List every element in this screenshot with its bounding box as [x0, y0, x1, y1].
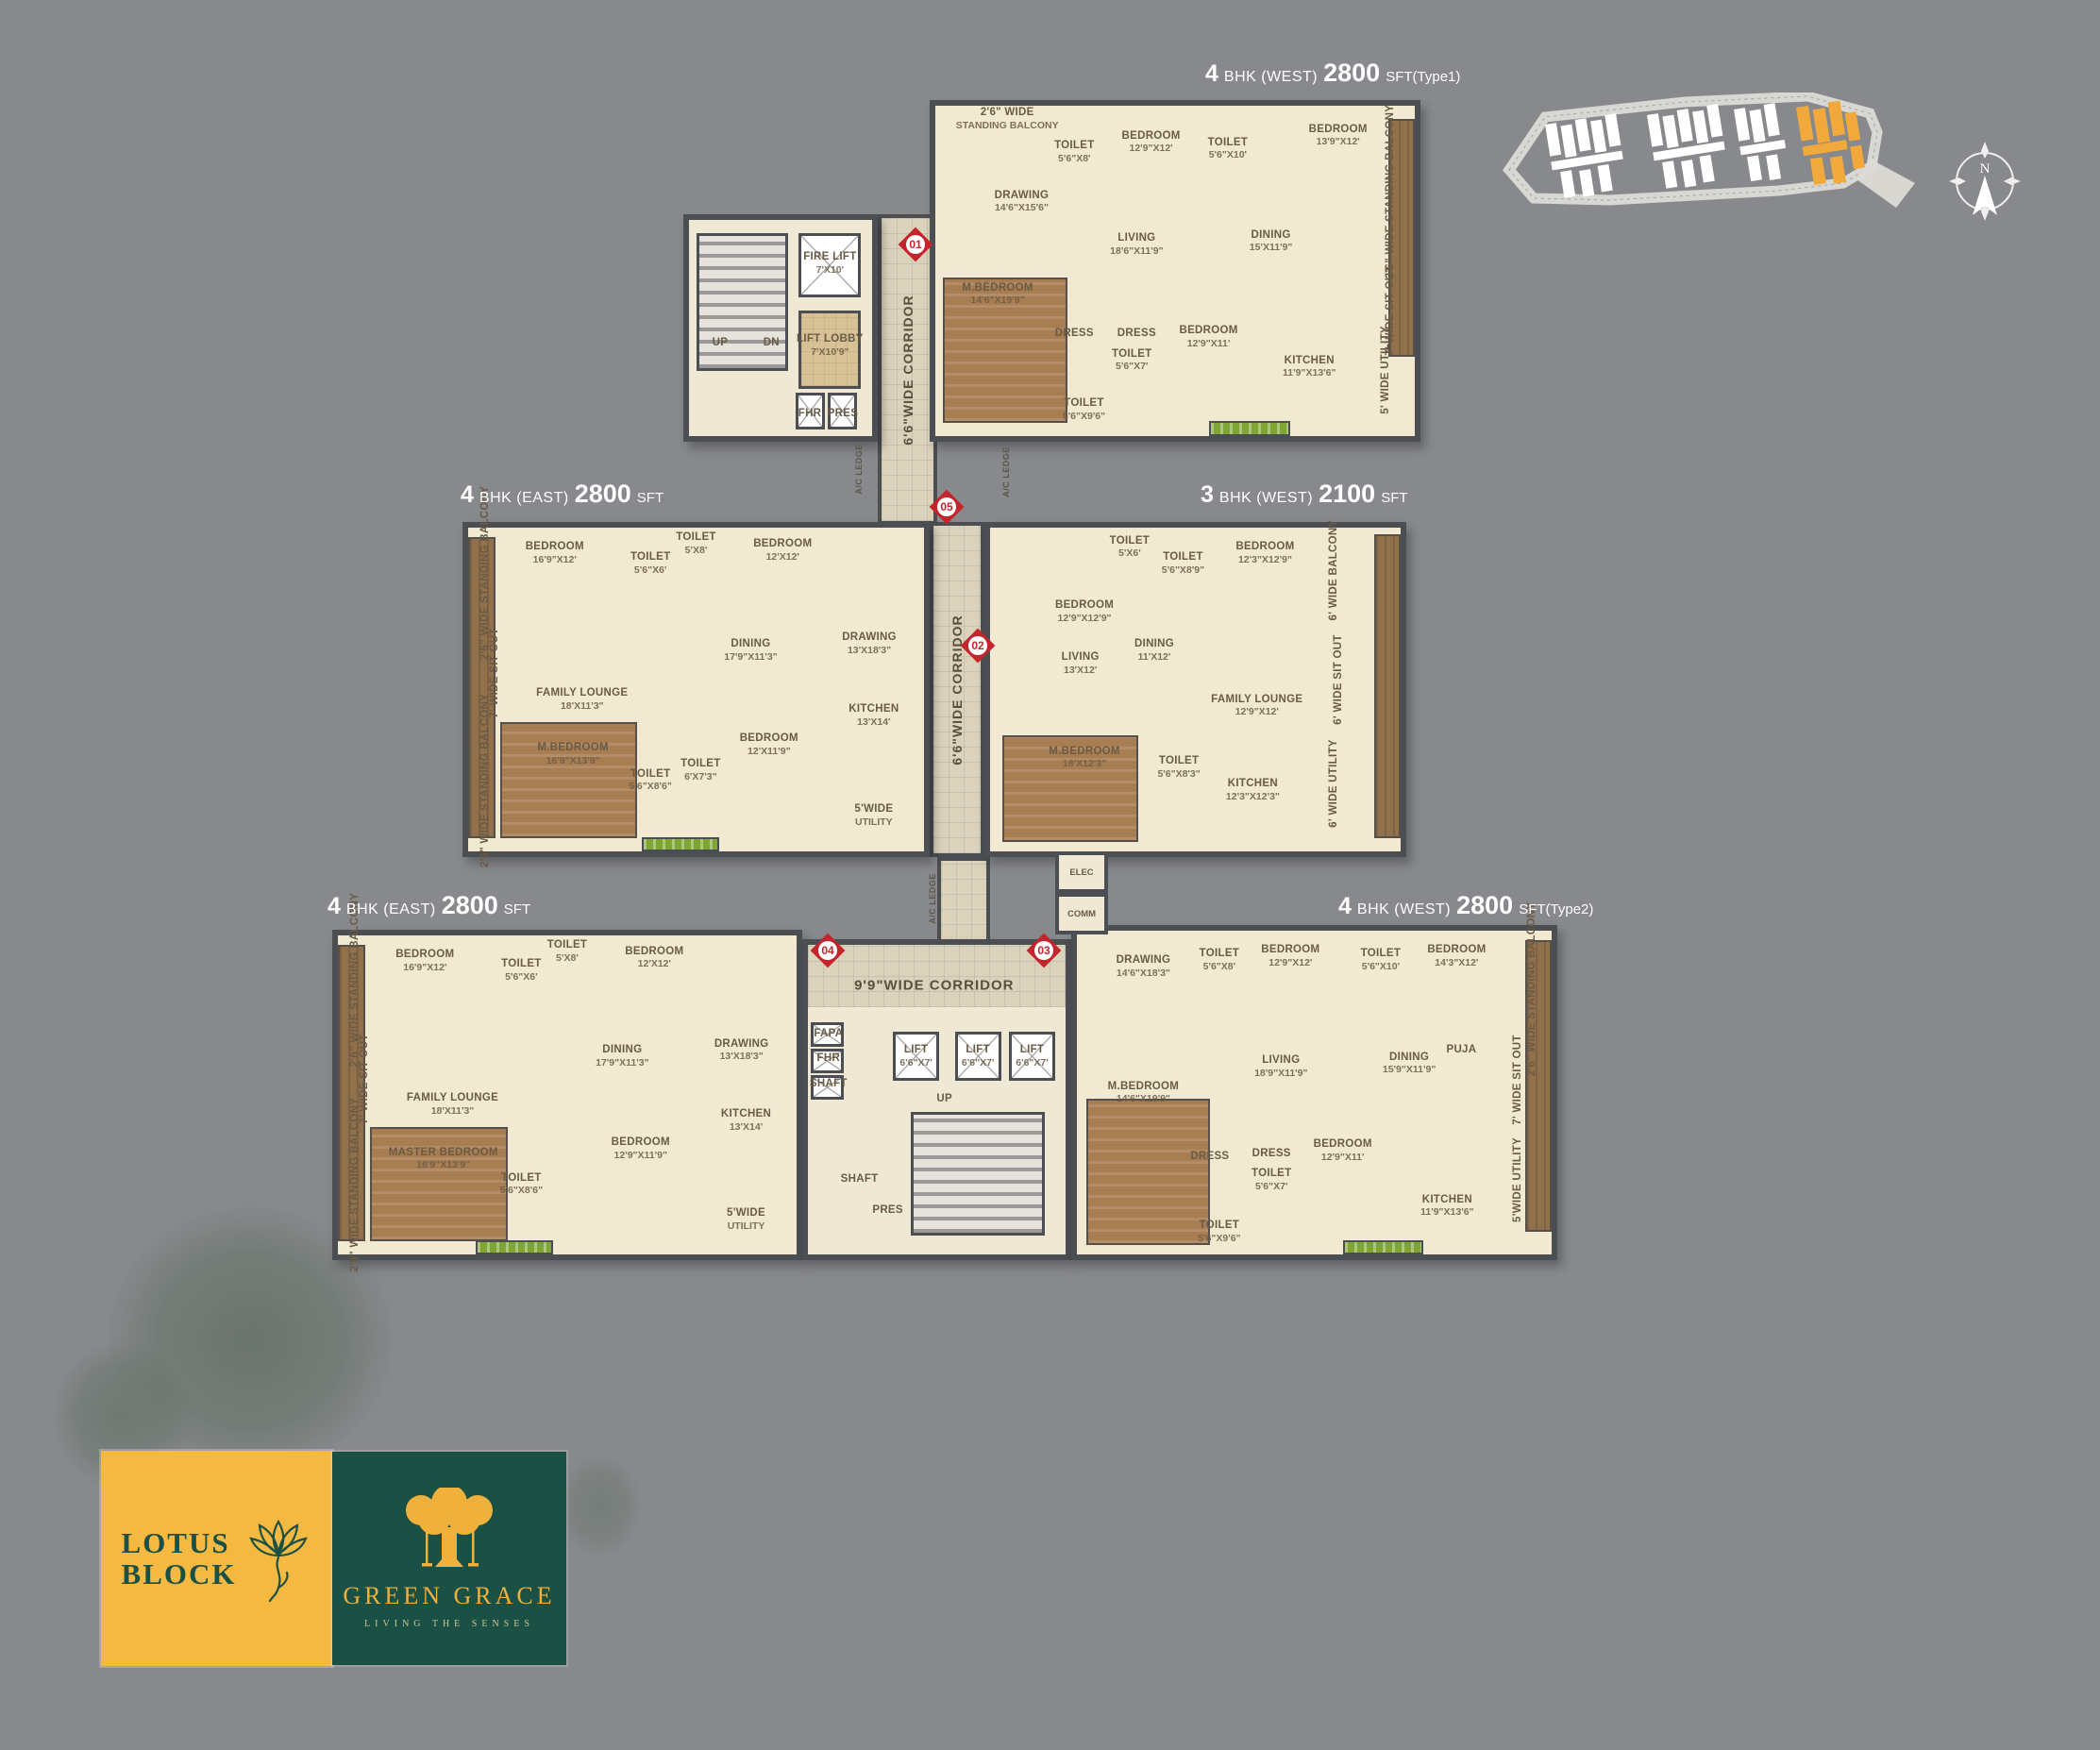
title-type: BHK (WEST): [1219, 490, 1313, 507]
title-type: BHK (EAST): [479, 490, 569, 507]
room-label-toilet: TOILET5'X6': [1110, 534, 1150, 559]
unit-02-3bhk-west: TOILET5'X6'TOILET5'6"X8'9"BEDROOM12'3"X1…: [984, 522, 1406, 857]
room-label-toilet: TOILET5'X8': [676, 531, 715, 556]
green-grace-tagline: LIVING THE SENSES: [364, 1619, 534, 1629]
green-grace-wordmark: GREEN GRACE: [343, 1582, 555, 1610]
room-label-master-bedroom: MASTER BEDROOM16'9"X13'9": [389, 1146, 498, 1170]
room-label-toilet: TOILET5'6"X8'3": [1157, 755, 1200, 780]
room-label-toilet: TOILET5'6"X7': [1252, 1168, 1291, 1192]
room-label-5-wide-utility: 5' WIDE UTILITY: [1380, 326, 1393, 414]
planter-strip: [1343, 1240, 1424, 1254]
unit-title-4bhk-east-mid: 4 BHK (EAST) 2800 SFT: [461, 480, 664, 509]
room-label-dress: DRESS: [1252, 1148, 1291, 1161]
room-label-lift-lobby: LIFT LOBBY7'X10'9": [797, 333, 864, 358]
room-label-dining: DINING15'9"X11'9": [1383, 1051, 1436, 1075]
title-area: 2800: [1456, 891, 1513, 920]
room-label-toilet: TOILET5'6"X8': [1054, 140, 1094, 164]
room-label-m-bedroom: M.BEDROOM16'9"X13'9": [537, 742, 609, 766]
title-area: 2800: [1323, 59, 1380, 88]
room-label-kitchen: KITCHEN13'X14': [848, 703, 899, 728]
unit-marker-01: 01: [899, 227, 932, 261]
unit-title-3bhk-west: 3 BHK (WEST) 2100 SFT: [1201, 480, 1408, 509]
room-label-2-6-wide-standing-balcony: 2'6" WIDE STANDING BALCONY: [1385, 105, 1398, 278]
site-key-plan: [1496, 93, 1940, 244]
master-bedroom-floor: [500, 722, 637, 838]
room-label-living: LIVING18'6"X11'9": [1110, 232, 1163, 257]
room-label-dress: DRESS: [1117, 328, 1156, 341]
ac-ledge-label: A/C LEDGE: [928, 873, 937, 924]
room-label-toilet: TOILET5'X8': [547, 939, 587, 964]
room-label-bedroom: BEDROOM12'9"X12': [1122, 129, 1181, 154]
unit-title-4bhk-east-bottom: 4 BHK (EAST) 2800 SFT: [328, 891, 530, 920]
room-label-toilet: TOILET5'6"X9'6": [1063, 397, 1105, 422]
corridor-bottom-link: [937, 857, 990, 944]
unit-title-4bhk-west-type1: 4 BHK (WEST) 2800 SFT(Type1): [1205, 59, 1460, 88]
room-label-kitchen: KITCHEN13'X14': [721, 1108, 771, 1133]
elec-label: ELEC: [1069, 867, 1093, 878]
planter-strip: [642, 837, 719, 851]
lotus-block-wordmark: LOTUS BLOCK: [122, 1527, 237, 1590]
room-label-2-6-wide-standing-balcony: 2'6" WIDE STANDING BALCONY: [1526, 902, 1539, 1076]
room-label-7-wide-sit-out: 7' WIDE SIT OUT: [1512, 1035, 1525, 1124]
tree-silhouette: [557, 1454, 642, 1557]
room-label-fhr: FHR: [817, 1052, 841, 1066]
comm-label: COMM: [1067, 909, 1096, 919]
room-label-dining: DINING17'9"X11'3": [724, 638, 777, 663]
compass-point-east: [2004, 177, 2021, 185]
room-label-m-bedroom: M.BEDROOM14'6"X19'9": [962, 281, 1033, 306]
master-bedroom-floor: [370, 1127, 508, 1242]
room-label-bedroom: BEDROOM16'9"X12': [526, 541, 584, 565]
room-label-toilet: TOILET5'6"X6': [630, 551, 670, 576]
room-label-drawing: DRAWING13'X18'3": [842, 631, 897, 656]
room-label-bedroom: BEDROOM12'9"X11': [1314, 1138, 1372, 1163]
stair-lift-core-top: FIRE LIFT7'X10'LIFT LOBBY7'X10'9"UPDNFHR…: [683, 214, 878, 442]
title-number: 3: [1201, 481, 1214, 509]
planter-strip: [1209, 421, 1290, 436]
title-area: 2800: [575, 480, 631, 509]
room-label-toilet: TOILET5'6"X10': [1361, 948, 1401, 972]
corridor-middle: 6'6"WIDE CORRIDOR: [930, 522, 984, 857]
room-label-5-wide: 5'WIDEUTILITY: [727, 1207, 765, 1232]
site-entry-spout: [1856, 159, 1915, 208]
room-label-dn: DN: [764, 337, 780, 350]
room-label-family-lounge: FAMILY LOUNGE18'X11'3": [407, 1092, 498, 1117]
room-label-2-6-wide: 2'6" WIDESTANDING BALCONY: [956, 107, 1059, 131]
title-number: 4: [1205, 60, 1218, 88]
planter-strip: [476, 1240, 554, 1254]
unit-marker-04: 04: [811, 934, 845, 968]
room-label-family-lounge: FAMILY LOUNGE12'9"X12': [1211, 693, 1302, 717]
ac-ledge-label: A/C LEDGE: [1001, 446, 1011, 497]
room-label-5-wide: 5'WIDEUTILITY: [854, 803, 893, 828]
room-label-bedroom: BEDROOM12'9"X11'9": [612, 1136, 670, 1161]
staircase: [911, 1112, 1045, 1236]
room-label-6-wide-sit-out: 6' WIDE SIT OUT: [1333, 635, 1346, 725]
room-label-toilet: TOILET5'6"X8'6": [500, 1171, 543, 1196]
room-label-bedroom: BEDROOM13'9"X12': [1309, 123, 1368, 147]
room-label-6-wide-utility: 6' WIDE UTILITY: [1328, 739, 1341, 828]
room-label-dining: DINING11'X12': [1134, 638, 1174, 663]
room-label-fapa: FAPA: [814, 1028, 843, 1041]
building-cluster-1: [1545, 113, 1628, 201]
unit-04-4bhk-east: 2'6" WIDE STANDING BALCONYBEDROOM16'9"X1…: [332, 930, 802, 1260]
room-label-kitchen: KITCHEN11'9"X13'6": [1283, 354, 1336, 379]
room-label-bedroom: BEDROOM12'9"X12'9": [1055, 599, 1114, 624]
room-label-bedroom: BEDROOM12'X12': [753, 538, 812, 563]
room-label-dining: DINING15'X11'9": [1250, 228, 1293, 253]
room-label-toilet: TOILET5'6"X9'6": [1198, 1220, 1240, 1244]
title-type: BHK (WEST): [1224, 69, 1318, 86]
elec-room: ELEC: [1055, 851, 1108, 893]
title-suffix: SFT: [637, 490, 664, 506]
green-grace-logo: GREEN GRACE LIVING THE SENSES: [332, 1452, 566, 1665]
master-bedroom-floor: [1086, 1099, 1210, 1244]
staircase: [697, 233, 788, 372]
unit-title-4bhk-west-type2: 4 BHK (WEST) 2800 SFT(Type2): [1338, 891, 1593, 920]
room-label-bedroom: BEDROOM12'9"X11': [1179, 325, 1237, 349]
lotus-line2: BLOCK: [122, 1558, 237, 1590]
room-label-living: LIVING18'9"X11'9": [1254, 1054, 1307, 1079]
room-label-toilet: TOILET5'6"X7': [1112, 347, 1151, 372]
title-area: 2800: [442, 891, 498, 920]
room-label-5-wide-utility: 5'WIDE UTILITY: [1512, 1137, 1525, 1222]
compass: N: [1938, 123, 2032, 231]
room-label-up: UP: [713, 337, 729, 350]
room-label-lift: LIFT6'6"X7': [899, 1044, 932, 1069]
room-label-toilet: TOILET5'6"X10': [1208, 136, 1248, 160]
title-suffix: SFT(Type1): [1386, 69, 1460, 85]
room-label-dining: DINING17'9"X11'3": [596, 1044, 648, 1069]
corridor-bottom-label: 9'9"WIDE CORRIDOR: [854, 977, 1014, 993]
compass-point-west: [1949, 177, 1966, 185]
room-label-bedroom: BEDROOM12'X11'9": [740, 732, 798, 757]
room-label-shaft: SHAFT: [810, 1078, 848, 1091]
room-label-2-6-wide-standing-balcony: 2'6" WIDE STANDING BALCONY: [479, 693, 493, 867]
stair-lift-core-bottom: 9'9"WIDE CORRIDOR FAPAFHRSHAFTLIFT6'6"X7…: [802, 939, 1071, 1260]
title-suffix: SFT(Type2): [1519, 901, 1593, 917]
room-label-kitchen: KITCHEN12'3"X12'3": [1226, 778, 1280, 802]
unit-marker-02: 02: [961, 629, 995, 663]
room-label-bedroom: BEDROOM12'X12': [625, 945, 683, 969]
lotus-block-logo: LOTUS BLOCK: [101, 1451, 332, 1666]
room-label-dress: DRESS: [1055, 328, 1094, 341]
lotus-line1: LOTUS: [122, 1527, 237, 1558]
balcony-strip: [1374, 534, 1401, 838]
room-label-bedroom: BEDROOM16'9"X12': [395, 949, 454, 973]
room-label-puja: PUJA: [1446, 1044, 1476, 1057]
corridor-top-label: 6'6"WIDE CORRIDOR: [900, 294, 916, 445]
room-label-m-bedroom: M.BEDROOM18'X12'3": [1049, 745, 1120, 769]
room-label-m-bedroom: M.BEDROOM14'6"X19'9": [1108, 1080, 1180, 1104]
compass-north-label: N: [1980, 161, 1991, 177]
compass-point-north: [1981, 142, 1989, 159]
title-area: 2100: [1319, 480, 1375, 509]
room-label-fire-lift: FIRE LIFT7'X10': [803, 251, 856, 276]
lotus-flower-icon: [245, 1514, 311, 1604]
green-grace-tree-icon: [393, 1488, 506, 1573]
room-label-drawing: DRAWING14'6"X15'6": [995, 189, 1050, 213]
floor-plan-canvas: 6'6"WIDE CORRIDOR 6'6"WIDE CORRIDOR ELEC…: [0, 0, 2100, 1750]
room-label-toilet: TOILET5'6"X8': [1200, 948, 1239, 972]
room-label-bedroom: BEDROOM14'3"X12': [1427, 944, 1486, 968]
title-number: 4: [328, 893, 341, 920]
title-suffix: SFT: [1381, 490, 1407, 506]
room-label-drawing: DRAWING13'X18'3": [714, 1037, 769, 1062]
room-label-lift: LIFT6'6"X7': [1016, 1044, 1049, 1069]
unit-01-4bhk-west-type1: 2'6" WIDESTANDING BALCONYDRAWING14'6"X15…: [930, 100, 1420, 442]
room-label-6-wide-balcony: 6' WIDE BALCONY: [1328, 519, 1341, 620]
room-label-shaft: SHAFT: [841, 1173, 879, 1186]
room-label-fhr: FHR: [798, 408, 822, 421]
room-label-family-lounge: FAMILY LOUNGE18'X11'3": [536, 687, 628, 712]
unit-05-4bhk-east: 2'6" WIDE STANDING BALCONYBEDROOM16'9"X1…: [462, 522, 930, 857]
ac-ledge-label: A/C LEDGE: [854, 444, 864, 495]
unit-03-4bhk-west-type2: DRAWING14'6"X18'3"TOILET5'6"X8'BEDROOM12…: [1071, 925, 1557, 1260]
title-type: BHK (EAST): [346, 901, 436, 918]
room-label-dress: DRESS: [1190, 1151, 1229, 1164]
room-label-up: UP: [936, 1093, 952, 1106]
room-label-lift: LIFT6'6"X7': [962, 1044, 995, 1069]
unit-marker-05: 05: [930, 490, 964, 524]
room-label-toilet: TOILET5'6"X8'9": [1162, 551, 1204, 576]
room-label-living: LIVING13'X12': [1062, 651, 1100, 676]
room-label-bedroom: BEDROOM12'3"X12'9": [1235, 541, 1294, 565]
comm-room: COMM: [1055, 893, 1108, 934]
room-label-bedroom: BEDROOM12'9"X12': [1261, 944, 1319, 968]
room-label-drawing: DRAWING14'6"X18'3": [1117, 954, 1171, 979]
title-suffix: SFT: [504, 901, 530, 917]
title-type: BHK (WEST): [1357, 901, 1451, 918]
building-cluster-2: [1647, 104, 1730, 192]
title-number: 4: [461, 481, 474, 509]
building-cluster-3: [1734, 102, 1790, 184]
title-number: 4: [1338, 893, 1352, 920]
room-label-toilet: TOILET5'6"X8'6": [630, 767, 672, 792]
room-label-toilet: TOILET5'6"X6': [501, 958, 541, 983]
room-label-toilet: TOILET6'X7'3": [680, 758, 720, 782]
room-label-kitchen: KITCHEN11'9"X13'6": [1420, 1193, 1473, 1218]
unit-marker-03: 03: [1027, 934, 1061, 968]
room-label-pres: PRES: [872, 1204, 903, 1218]
room-label-2-6-wide-standing-balcony: 2'6" WIDE STANDING BALCONY: [350, 1097, 363, 1270]
room-label-pres: PRES: [828, 408, 859, 421]
